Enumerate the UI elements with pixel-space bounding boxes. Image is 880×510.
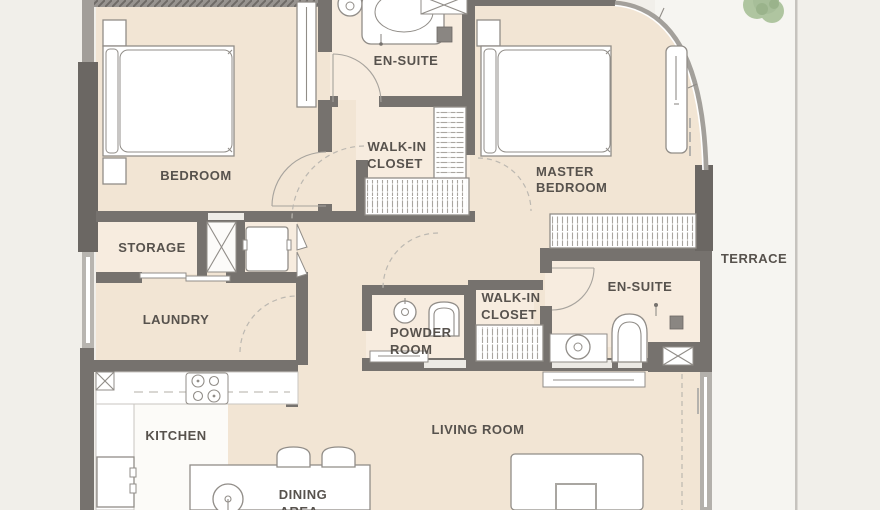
- table-planter: [213, 484, 243, 510]
- floor-plan-page: BEDROOM EN-SUITE WALK-IN CLOSET MASTER B…: [0, 0, 880, 510]
- label-walkin-lower-2: CLOSET: [481, 307, 537, 322]
- label-storage: STORAGE: [118, 240, 186, 255]
- washing-machine-icon: [243, 227, 291, 271]
- shaft-box: [207, 222, 236, 272]
- label-living-room: LIVING ROOM: [432, 422, 525, 437]
- stove-icon: [186, 373, 228, 404]
- label-master-1: MASTER: [536, 164, 594, 179]
- laundry-window: [86, 257, 90, 343]
- wardrobe: [297, 2, 316, 107]
- label-dining-1: DINING: [279, 487, 328, 502]
- nightstand: [477, 20, 500, 46]
- label-walkin-top-2: CLOSET: [367, 156, 423, 171]
- label-master-2: BEDROOM: [536, 180, 607, 195]
- shower-icon: [421, 0, 467, 14]
- label-kitchen: KITCHEN: [145, 428, 206, 443]
- bed: [103, 46, 234, 156]
- floor-drain: [437, 27, 452, 42]
- label-dining-2: AREA: [280, 504, 319, 510]
- dining-chair: [322, 447, 355, 467]
- label-powder-2: ROOM: [390, 342, 432, 357]
- label-walkin-lower-1: WALK-IN: [481, 290, 540, 305]
- label-bedroom: BEDROOM: [160, 168, 231, 183]
- master-wardrobe: [550, 214, 696, 248]
- nightstand: [103, 158, 126, 184]
- label-powder-1: POWDER: [390, 325, 452, 340]
- nightstand: [103, 20, 126, 46]
- vent-box: [663, 347, 693, 365]
- window-bench: [666, 46, 687, 153]
- bed: [481, 46, 611, 156]
- console-table: [543, 372, 645, 387]
- utility-fixtures: [207, 222, 291, 272]
- terrace-edge-line: [795, 0, 798, 510]
- floor-drain: [670, 316, 683, 329]
- label-laundry: LAUNDRY: [143, 312, 210, 327]
- fridge-icon: [97, 457, 136, 507]
- label-ensuite-top: EN-SUITE: [374, 53, 439, 68]
- label-ensuite-right: EN-SUITE: [608, 279, 673, 294]
- coffee-table: [556, 484, 596, 510]
- label-walkin-top-1: WALK-IN: [367, 139, 426, 154]
- walk-in-closet-lower-wardrobe: [476, 325, 543, 361]
- vanity-sink: [550, 334, 607, 362]
- shaft-box-small: [96, 372, 114, 390]
- toilet-icon: [612, 314, 647, 362]
- dining-chair: [277, 447, 310, 467]
- floor-plan-svg: BEDROOM EN-SUITE WALK-IN CLOSET MASTER B…: [0, 0, 880, 510]
- label-terrace: TERRACE: [721, 251, 787, 266]
